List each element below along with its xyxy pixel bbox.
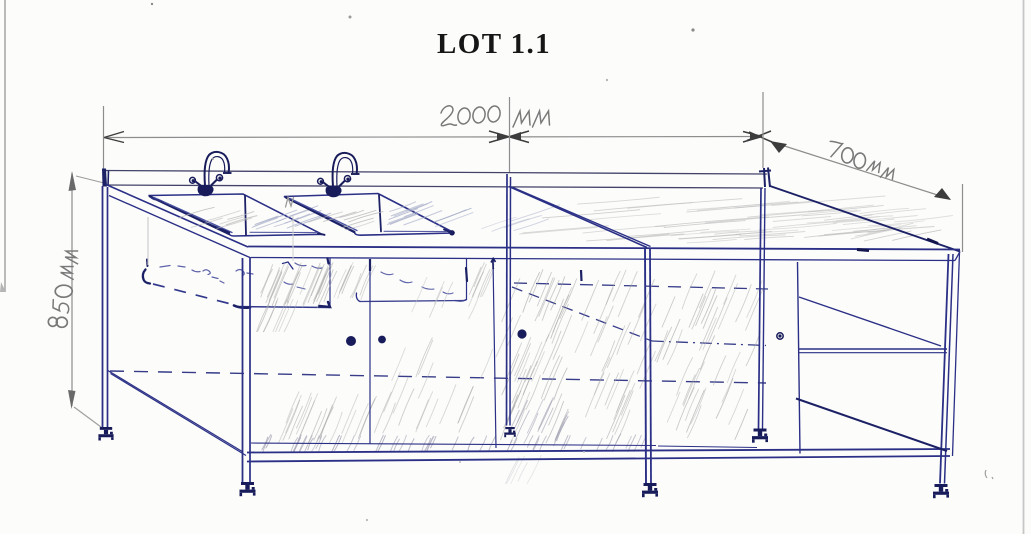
svg-text:LOT 1.1: LOT 1.1 <box>437 28 551 60</box>
